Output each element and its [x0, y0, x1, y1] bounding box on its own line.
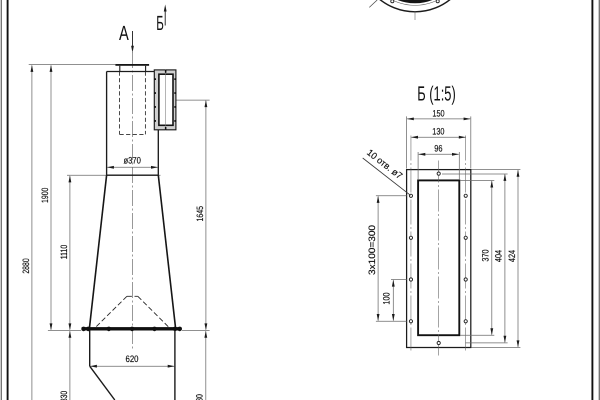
svg-text:А: А [119, 22, 129, 45]
svg-text:100: 100 [381, 292, 391, 304]
svg-text:404: 404 [494, 250, 504, 262]
svg-text:330: 330 [59, 391, 69, 400]
svg-text:424: 424 [507, 250, 517, 262]
svg-text:620: 620 [126, 354, 139, 364]
svg-text:ø370: ø370 [123, 156, 141, 166]
svg-text:1110: 1110 [59, 245, 69, 260]
svg-text:150: 150 [432, 108, 444, 118]
svg-text:Б (1:5): Б (1:5) [417, 82, 456, 105]
svg-text:370: 370 [481, 249, 491, 261]
svg-text:2880: 2880 [21, 258, 31, 273]
svg-text:1900: 1900 [40, 188, 50, 203]
svg-text:80: 80 [195, 394, 205, 400]
svg-text:1645: 1645 [195, 206, 205, 222]
svg-text:Б: Б [156, 12, 164, 35]
svg-text:130: 130 [432, 127, 444, 137]
svg-text:96: 96 [434, 144, 442, 154]
svg-text:3x100=300: 3x100=300 [367, 225, 377, 275]
